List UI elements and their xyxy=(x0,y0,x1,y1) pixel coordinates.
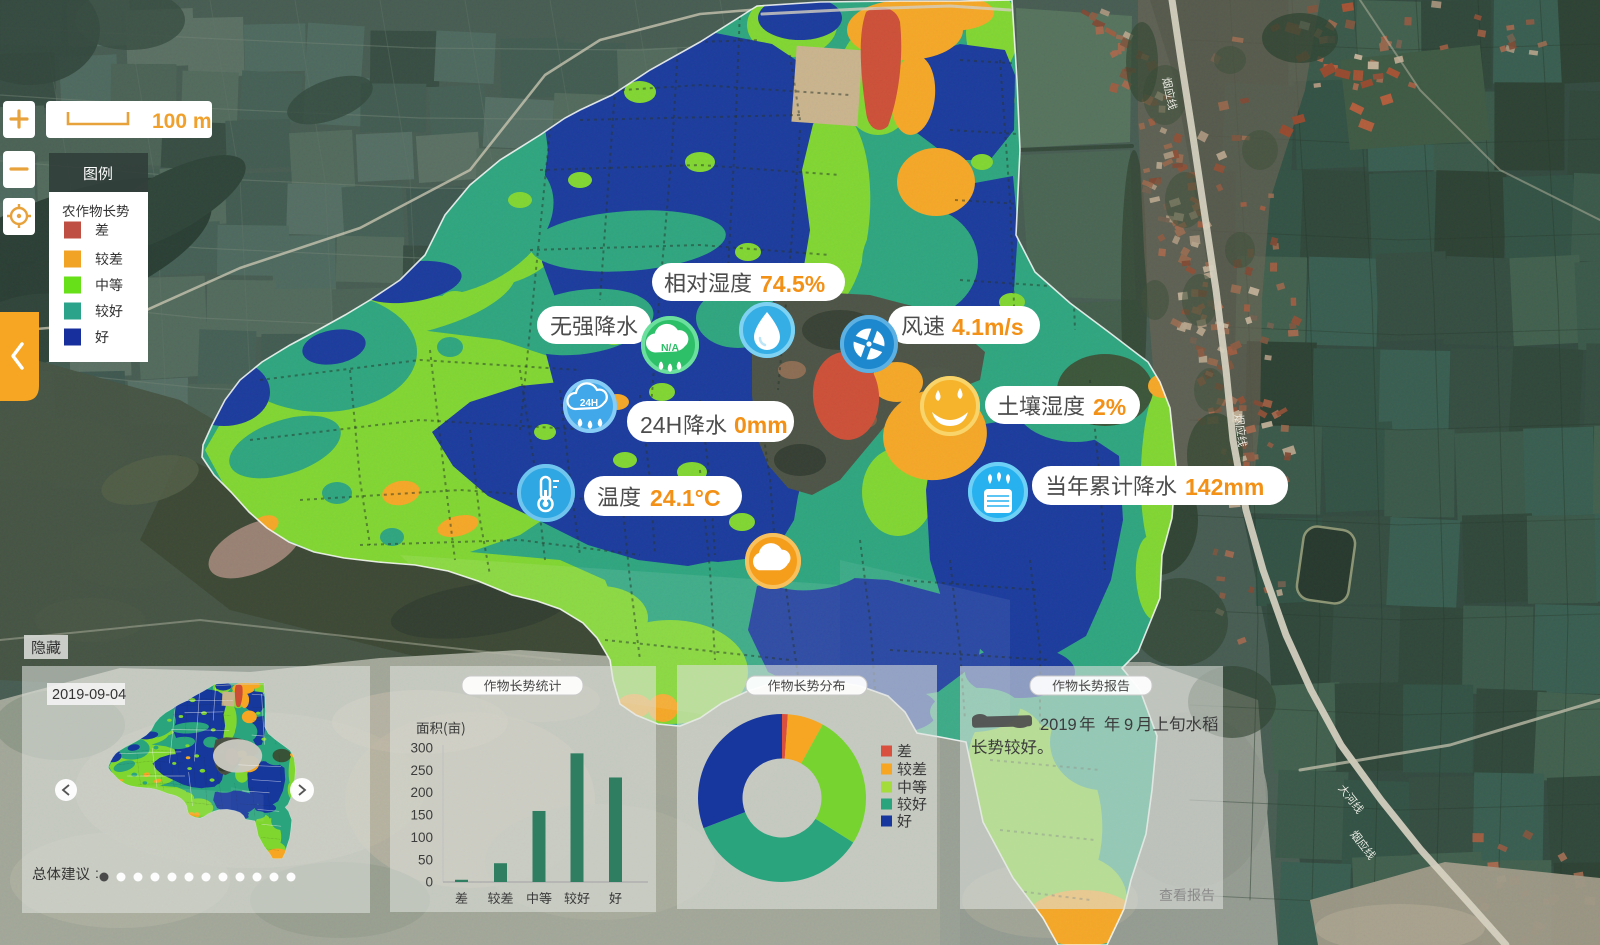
svg-text:142mm: 142mm xyxy=(1185,474,1264,500)
svg-text:24H: 24H xyxy=(580,398,598,409)
svg-text::: : xyxy=(95,865,99,881)
svg-text:200: 200 xyxy=(410,785,433,800)
svg-text:50: 50 xyxy=(418,852,433,867)
svg-text:0: 0 xyxy=(425,875,433,890)
svg-text:4.1m/s: 4.1m/s xyxy=(952,314,1024,340)
svg-text:0mm: 0mm xyxy=(734,412,788,438)
svg-text:24.1°C: 24.1°C xyxy=(650,485,721,511)
svg-text:74.5%: 74.5% xyxy=(760,271,825,297)
svg-text:150: 150 xyxy=(410,808,433,823)
svg-text:250: 250 xyxy=(410,763,433,778)
svg-text:2%: 2% xyxy=(1093,394,1126,420)
svg-text:2019-09-04: 2019-09-04 xyxy=(52,687,126,703)
svg-text:9: 9 xyxy=(1124,716,1133,734)
svg-text:2019: 2019 xyxy=(1040,716,1077,734)
svg-text:100: 100 xyxy=(410,830,433,845)
svg-text:24H: 24H xyxy=(640,412,682,438)
svg-text:300: 300 xyxy=(410,741,433,756)
svg-text:N/A: N/A xyxy=(661,342,680,354)
svg-text:100 m: 100 m xyxy=(152,110,212,133)
